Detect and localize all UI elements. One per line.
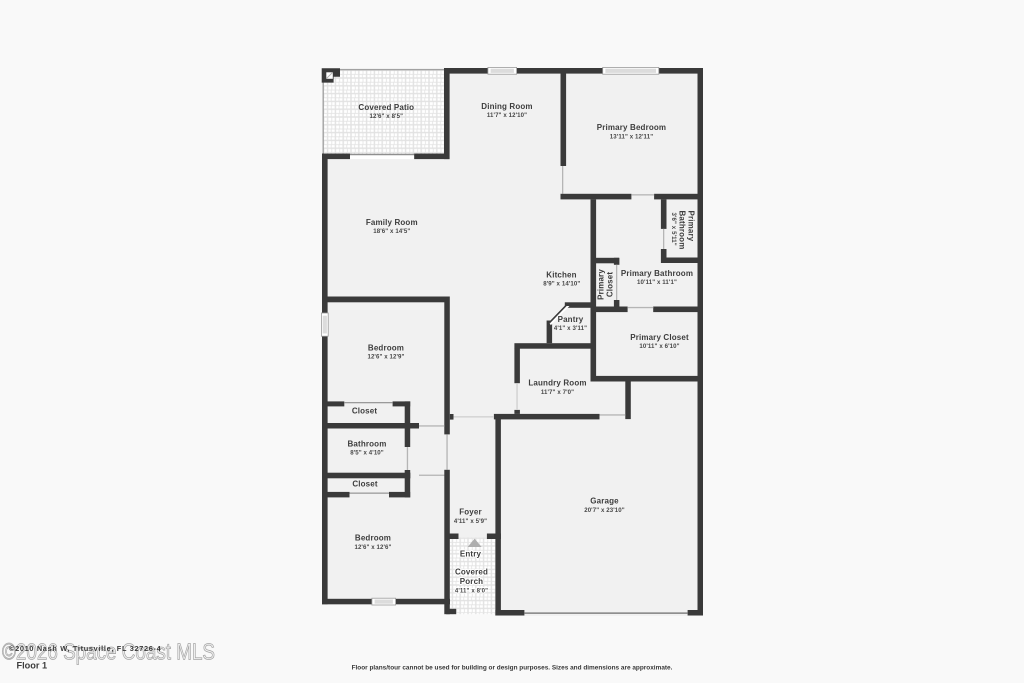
svg-text:Entry: Entry (460, 550, 482, 559)
svg-text:12'6" x 12'6": 12'6" x 12'6" (354, 544, 391, 551)
svg-text:Laundry Room: Laundry Room (528, 379, 586, 388)
svg-text:Primary: Primary (687, 211, 696, 242)
svg-text:18'6" x 14'5": 18'6" x 14'5" (373, 228, 410, 235)
svg-text:10'11" x 11'1": 10'11" x 11'1" (637, 279, 677, 286)
svg-text:Kitchen: Kitchen (546, 271, 576, 280)
svg-text:Bedroom: Bedroom (355, 534, 391, 543)
svg-text:Dining Room: Dining Room (481, 102, 532, 111)
svg-text:4'1" x 3'11": 4'1" x 3'11" (554, 325, 587, 332)
svg-text:Covered Patio: Covered Patio (358, 103, 414, 112)
svg-text:Bathroom: Bathroom (678, 211, 687, 250)
svg-text:Closet: Closet (352, 480, 378, 489)
svg-text:4'11" x 8'0": 4'11" x 8'0" (455, 588, 488, 595)
svg-text:11'7" x 7'0": 11'7" x 7'0" (541, 389, 574, 396)
svg-text:Family Room: Family Room (366, 218, 418, 227)
svg-text:20'7" x 23'10": 20'7" x 23'10" (584, 507, 625, 514)
svg-text:11'7" x 12'10": 11'7" x 12'10" (487, 112, 527, 119)
svg-text:12'6" x 8'5": 12'6" x 8'5" (369, 113, 403, 120)
svg-text:Bathroom: Bathroom (348, 440, 387, 449)
svg-text:Primary: Primary (597, 269, 606, 300)
svg-text:Floor plans/tour cannot be use: Floor plans/tour cannot be used for buil… (352, 665, 673, 672)
svg-text:Floor 1: Floor 1 (17, 661, 48, 671)
svg-text:Bedroom: Bedroom (368, 344, 404, 353)
svg-text:Closet: Closet (352, 407, 378, 416)
svg-text:Primary Closet: Primary Closet (630, 333, 689, 342)
svg-text:Porch: Porch (460, 577, 483, 586)
svg-text:Closet: Closet (606, 272, 615, 298)
svg-text:Garage: Garage (590, 497, 619, 506)
svg-text:10'11" x 6'10": 10'11" x 6'10" (639, 343, 679, 350)
svg-text:8'9" x 14'10": 8'9" x 14'10" (543, 281, 580, 288)
svg-text:Foyer: Foyer (459, 508, 482, 517)
svg-text:Primary Bedroom: Primary Bedroom (597, 123, 666, 132)
svg-text:Primary Bathroom: Primary Bathroom (621, 269, 693, 278)
svg-text:Covered: Covered (455, 568, 488, 577)
svg-text:©2010 Nash W, Titusville, FL 3: ©2010 Nash W, Titusville, FL 32726-4 (9, 644, 162, 653)
svg-text:Pantry: Pantry (558, 315, 584, 324)
svg-text:3'6" x 5'11": 3'6" x 5'11" (670, 213, 677, 246)
svg-text:12'6" x 12'9": 12'6" x 12'9" (367, 354, 404, 361)
svg-text:13'11" x 12'11": 13'11" x 12'11" (610, 134, 653, 141)
svg-text:4'11" x 5'9": 4'11" x 5'9" (454, 518, 487, 525)
svg-text:8'5" x 4'10": 8'5" x 4'10" (350, 450, 384, 457)
